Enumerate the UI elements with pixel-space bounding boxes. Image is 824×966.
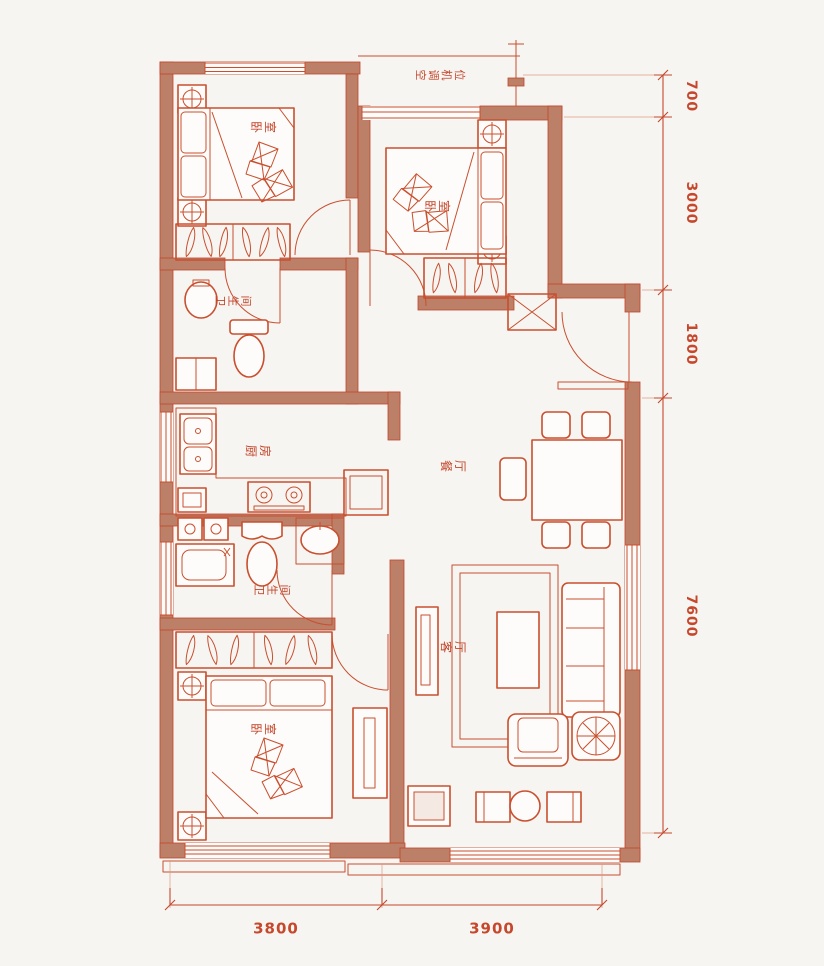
floor-plan-drawing — [0, 0, 824, 966]
dim-right-700: 700 — [684, 80, 698, 112]
room-label-bedroom-top-right: 卧室 — [423, 201, 451, 213]
room-label-bedroom-bottom-left: 卧室 — [249, 724, 277, 736]
dim-right-1800: 1800 — [684, 323, 698, 366]
room-label-equipment-platform: 空调机位 — [414, 71, 466, 82]
dim-bottom-3900: 3900 — [469, 922, 515, 937]
dim-right-3000: 3000 — [684, 182, 698, 225]
dim-bottom-3800: 3800 — [253, 922, 299, 937]
room-label-bedroom-top-left: 卧室 — [249, 122, 277, 134]
bed-bottom-left — [206, 676, 332, 818]
room-label-bath-upper: 卫生间 — [214, 297, 253, 308]
bed-top-left — [178, 108, 297, 211]
room-label-dining: 餐厅 — [439, 461, 467, 473]
room-label-kitchen: 厨房 — [244, 446, 272, 458]
floor-plan: 空调机位 卧室 卧室 卫生间 厨房 餐厅 卫生间 客厅 卧室 700 3000 … — [0, 0, 824, 966]
room-label-living: 客厅 — [439, 642, 467, 654]
room-label-bath-lower: 卫生间 — [253, 586, 292, 597]
dim-right-7600: 7600 — [684, 595, 698, 638]
